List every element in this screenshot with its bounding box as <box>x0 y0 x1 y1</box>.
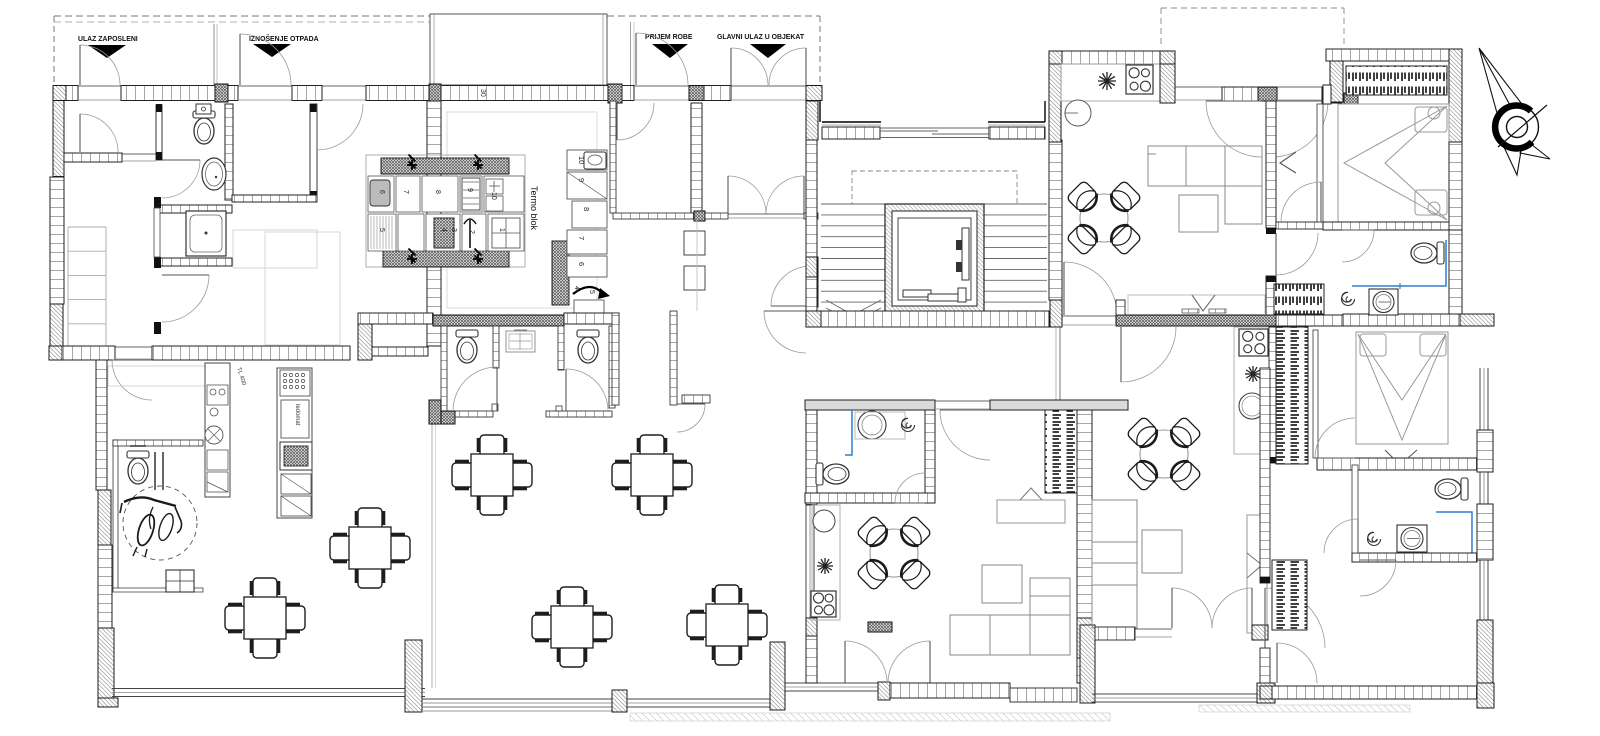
svg-text:ULAZ ZAPOSLENI: ULAZ ZAPOSLENI <box>78 36 138 43</box>
svg-text:1: 1 <box>498 228 505 232</box>
svg-text:5: 5 <box>378 228 385 232</box>
svg-text:6: 6 <box>378 190 385 194</box>
svg-text:4: 4 <box>440 228 447 232</box>
svg-text:9: 9 <box>466 188 473 192</box>
svg-text:5: 5 <box>588 290 595 294</box>
svg-text:Termo blok: Termo blok <box>529 186 539 231</box>
svg-text:IZNOŠENJE OTPADA: IZNOŠENJE OTPADA <box>249 34 319 43</box>
svg-text:7: 7 <box>402 190 409 194</box>
svg-text:3: 3 <box>450 228 457 232</box>
svg-text:2: 2 <box>468 230 475 234</box>
svg-text:GLAVNI ULAZ U OBJEKAT: GLAVNI ULAZ U OBJEKAT <box>717 34 805 41</box>
svg-text:10: 10 <box>490 192 497 200</box>
svg-text:8: 8 <box>434 190 441 194</box>
svg-text:7: 7 <box>577 236 586 240</box>
svg-text:30: 30 <box>479 89 486 97</box>
svg-text:4: 4 <box>573 286 580 290</box>
svg-text:8: 8 <box>582 207 591 211</box>
svg-text:ledomat: ledomat <box>294 404 300 426</box>
svg-text:6: 6 <box>577 262 586 266</box>
